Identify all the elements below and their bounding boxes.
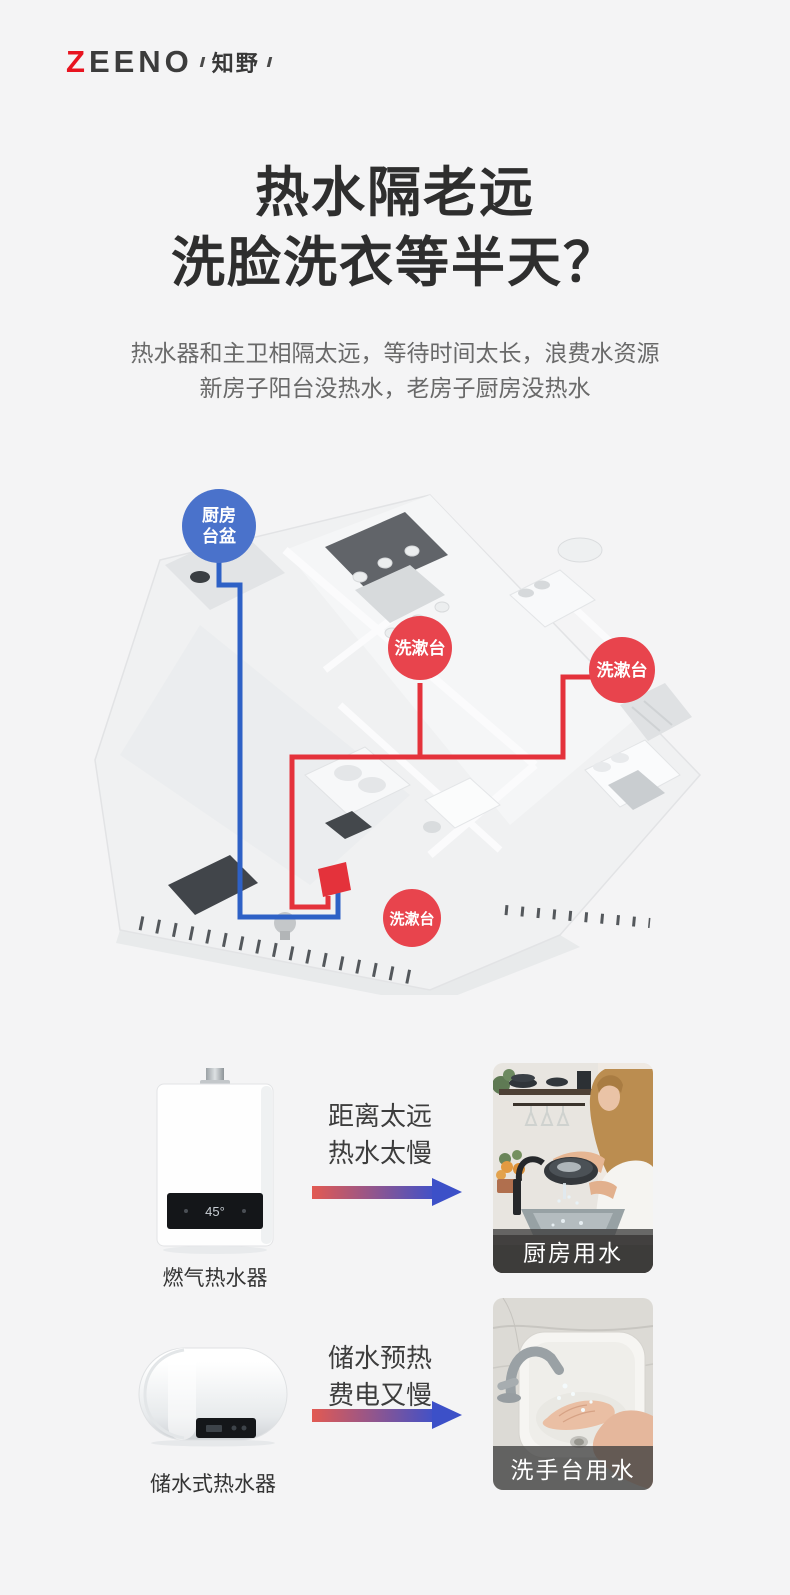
- washbasin-badge-3: 洗漱台: [383, 889, 441, 947]
- hero-title: 热水隔老远 洗脸洗衣等半天？: [0, 158, 790, 298]
- kitchen-basin-badge-line1: 厨房: [202, 505, 236, 525]
- washbasin-badge-2-label: 洗漱台: [597, 660, 648, 680]
- floorplan-diagram: 厨房 台盆 洗漱台 洗漱台 洗漱台: [80, 455, 710, 995]
- hero-subtitle-line1: 热水器和主卫相隔太远，等待时间太长，浪费水资源: [0, 336, 790, 371]
- heater-display-readout: 45°: [205, 1204, 225, 1219]
- hero-subtitle: 热水器和主卫相隔太远，等待时间太长，浪费水资源 新房子阳台没热水，老房子厨房没热…: [0, 336, 790, 405]
- washbasin-badge-1-label: 洗漱台: [395, 638, 446, 658]
- brand-letter-z: Z: [66, 44, 89, 79]
- quote-tick-right-icon: [267, 57, 272, 67]
- problem-row2-line1: 储水预热: [295, 1340, 465, 1377]
- hero-title-line1: 热水隔老远: [0, 158, 790, 228]
- brand-letters-rest: EENO: [89, 44, 193, 79]
- washbasin-badge-2: 洗漱台: [589, 637, 655, 703]
- photo-caption-washbasin-text: 洗手台用水: [511, 1451, 636, 1485]
- product-label-gas-heater: 燃气热水器: [135, 1262, 295, 1292]
- problem-text-row1: 距离太远 热水太慢: [295, 1098, 465, 1172]
- gas-water-heater-illustration: 45°: [150, 1068, 280, 1258]
- kitchen-basin-badge-line2: 台盆: [202, 526, 237, 546]
- brand-wordmark: ZEENO: [66, 44, 193, 80]
- washbasin-badge-1: 洗漱台: [388, 616, 452, 680]
- product-label-storage-heater: 储水式热水器: [133, 1468, 293, 1498]
- promo-page: ZEENO 知野 热水隔老远 洗脸洗衣等半天？ 热水器和主卫相隔太远，等待时间太…: [0, 0, 790, 1595]
- gradient-arrow-icon: [312, 1178, 462, 1206]
- heater2-control-panel: [196, 1418, 256, 1438]
- kitchen-photo: 厨房用水: [493, 1063, 653, 1273]
- washbasin-badge-3-label: 洗漱台: [389, 910, 434, 928]
- brand-chinese-name: 知野: [212, 46, 260, 78]
- kitchen-basin-badge: 厨房 台盆: [182, 489, 256, 563]
- problem-row1-line2: 热水太慢: [295, 1135, 465, 1172]
- photo-caption-kitchen: 厨房用水: [493, 1229, 653, 1273]
- storage-water-heater-illustration: [138, 1342, 288, 1447]
- brand-logo: ZEENO 知野: [66, 44, 279, 80]
- hero-title-line2: 洗脸洗衣等半天？: [0, 228, 790, 298]
- svg-text:厨房: 厨房: [202, 505, 236, 525]
- problem-row1-line1: 距离太远: [295, 1098, 465, 1135]
- hero-subtitle-line2: 新房子阳台没热水，老房子厨房没热水: [0, 371, 790, 406]
- photo-caption-washbasin: 洗手台用水: [493, 1446, 653, 1490]
- quote-tick-left-icon: [200, 57, 205, 67]
- photo-caption-kitchen-text: 厨房用水: [523, 1234, 623, 1268]
- gradient-arrow-icon-2: [312, 1401, 462, 1429]
- svg-text:台盆: 台盆: [202, 526, 237, 546]
- washbasin-photo: 洗手台用水: [493, 1298, 653, 1490]
